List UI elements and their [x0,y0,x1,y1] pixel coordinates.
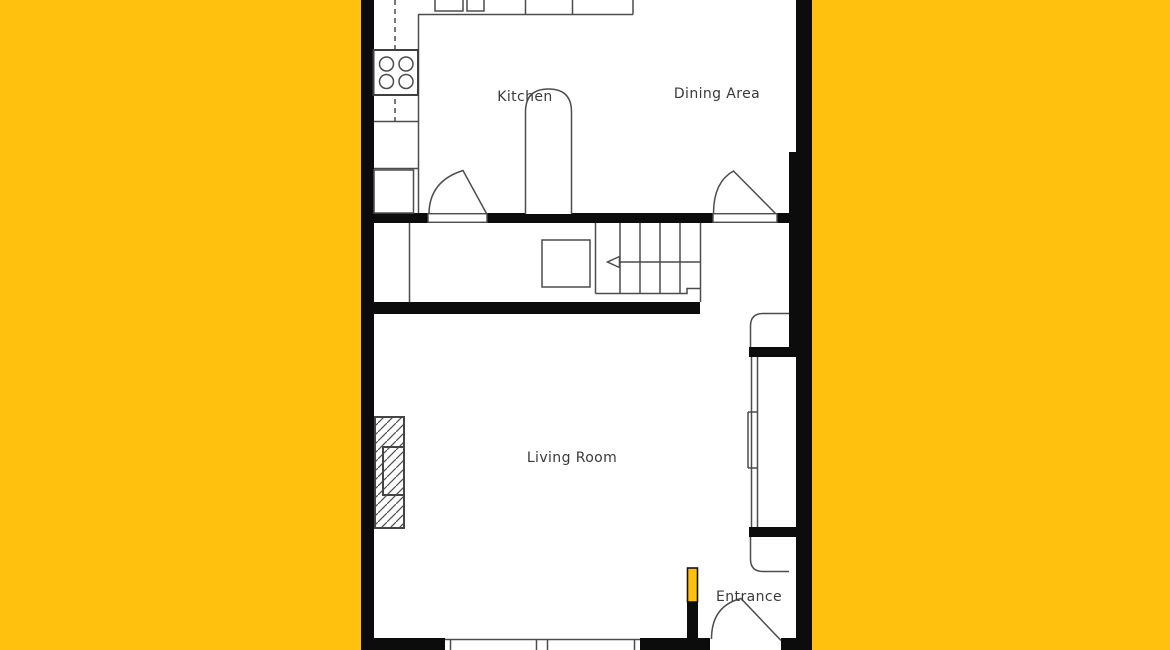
kitchen-door-threshold [428,214,487,223]
floor-plan-canvas: Kitchen Dining Area Living Room Entrance [0,0,1170,650]
window-stub-top [749,347,812,357]
room-label-entrance: Entrance [716,589,782,605]
room-label-living-room: Living Room [527,450,617,466]
fireplace-symbol [375,417,404,528]
entrance-door-opening [710,638,781,650]
right-wall-thick-segment [789,152,812,348]
stove-symbol [374,50,419,95]
dining-door-threshold [713,214,777,223]
kitchen-partition-capsule [526,89,572,214]
hall-livingroom-wall [361,302,700,314]
left-wall [361,0,374,650]
highlighted-wall-segment [688,568,698,602]
floor-plan-drawing [0,0,1170,650]
room-label-dining-area: Dining Area [674,86,760,102]
room-label-kitchen: Kitchen [497,89,552,105]
window-stub-bottom [749,527,812,537]
entrance-wall-stub [687,601,698,650]
